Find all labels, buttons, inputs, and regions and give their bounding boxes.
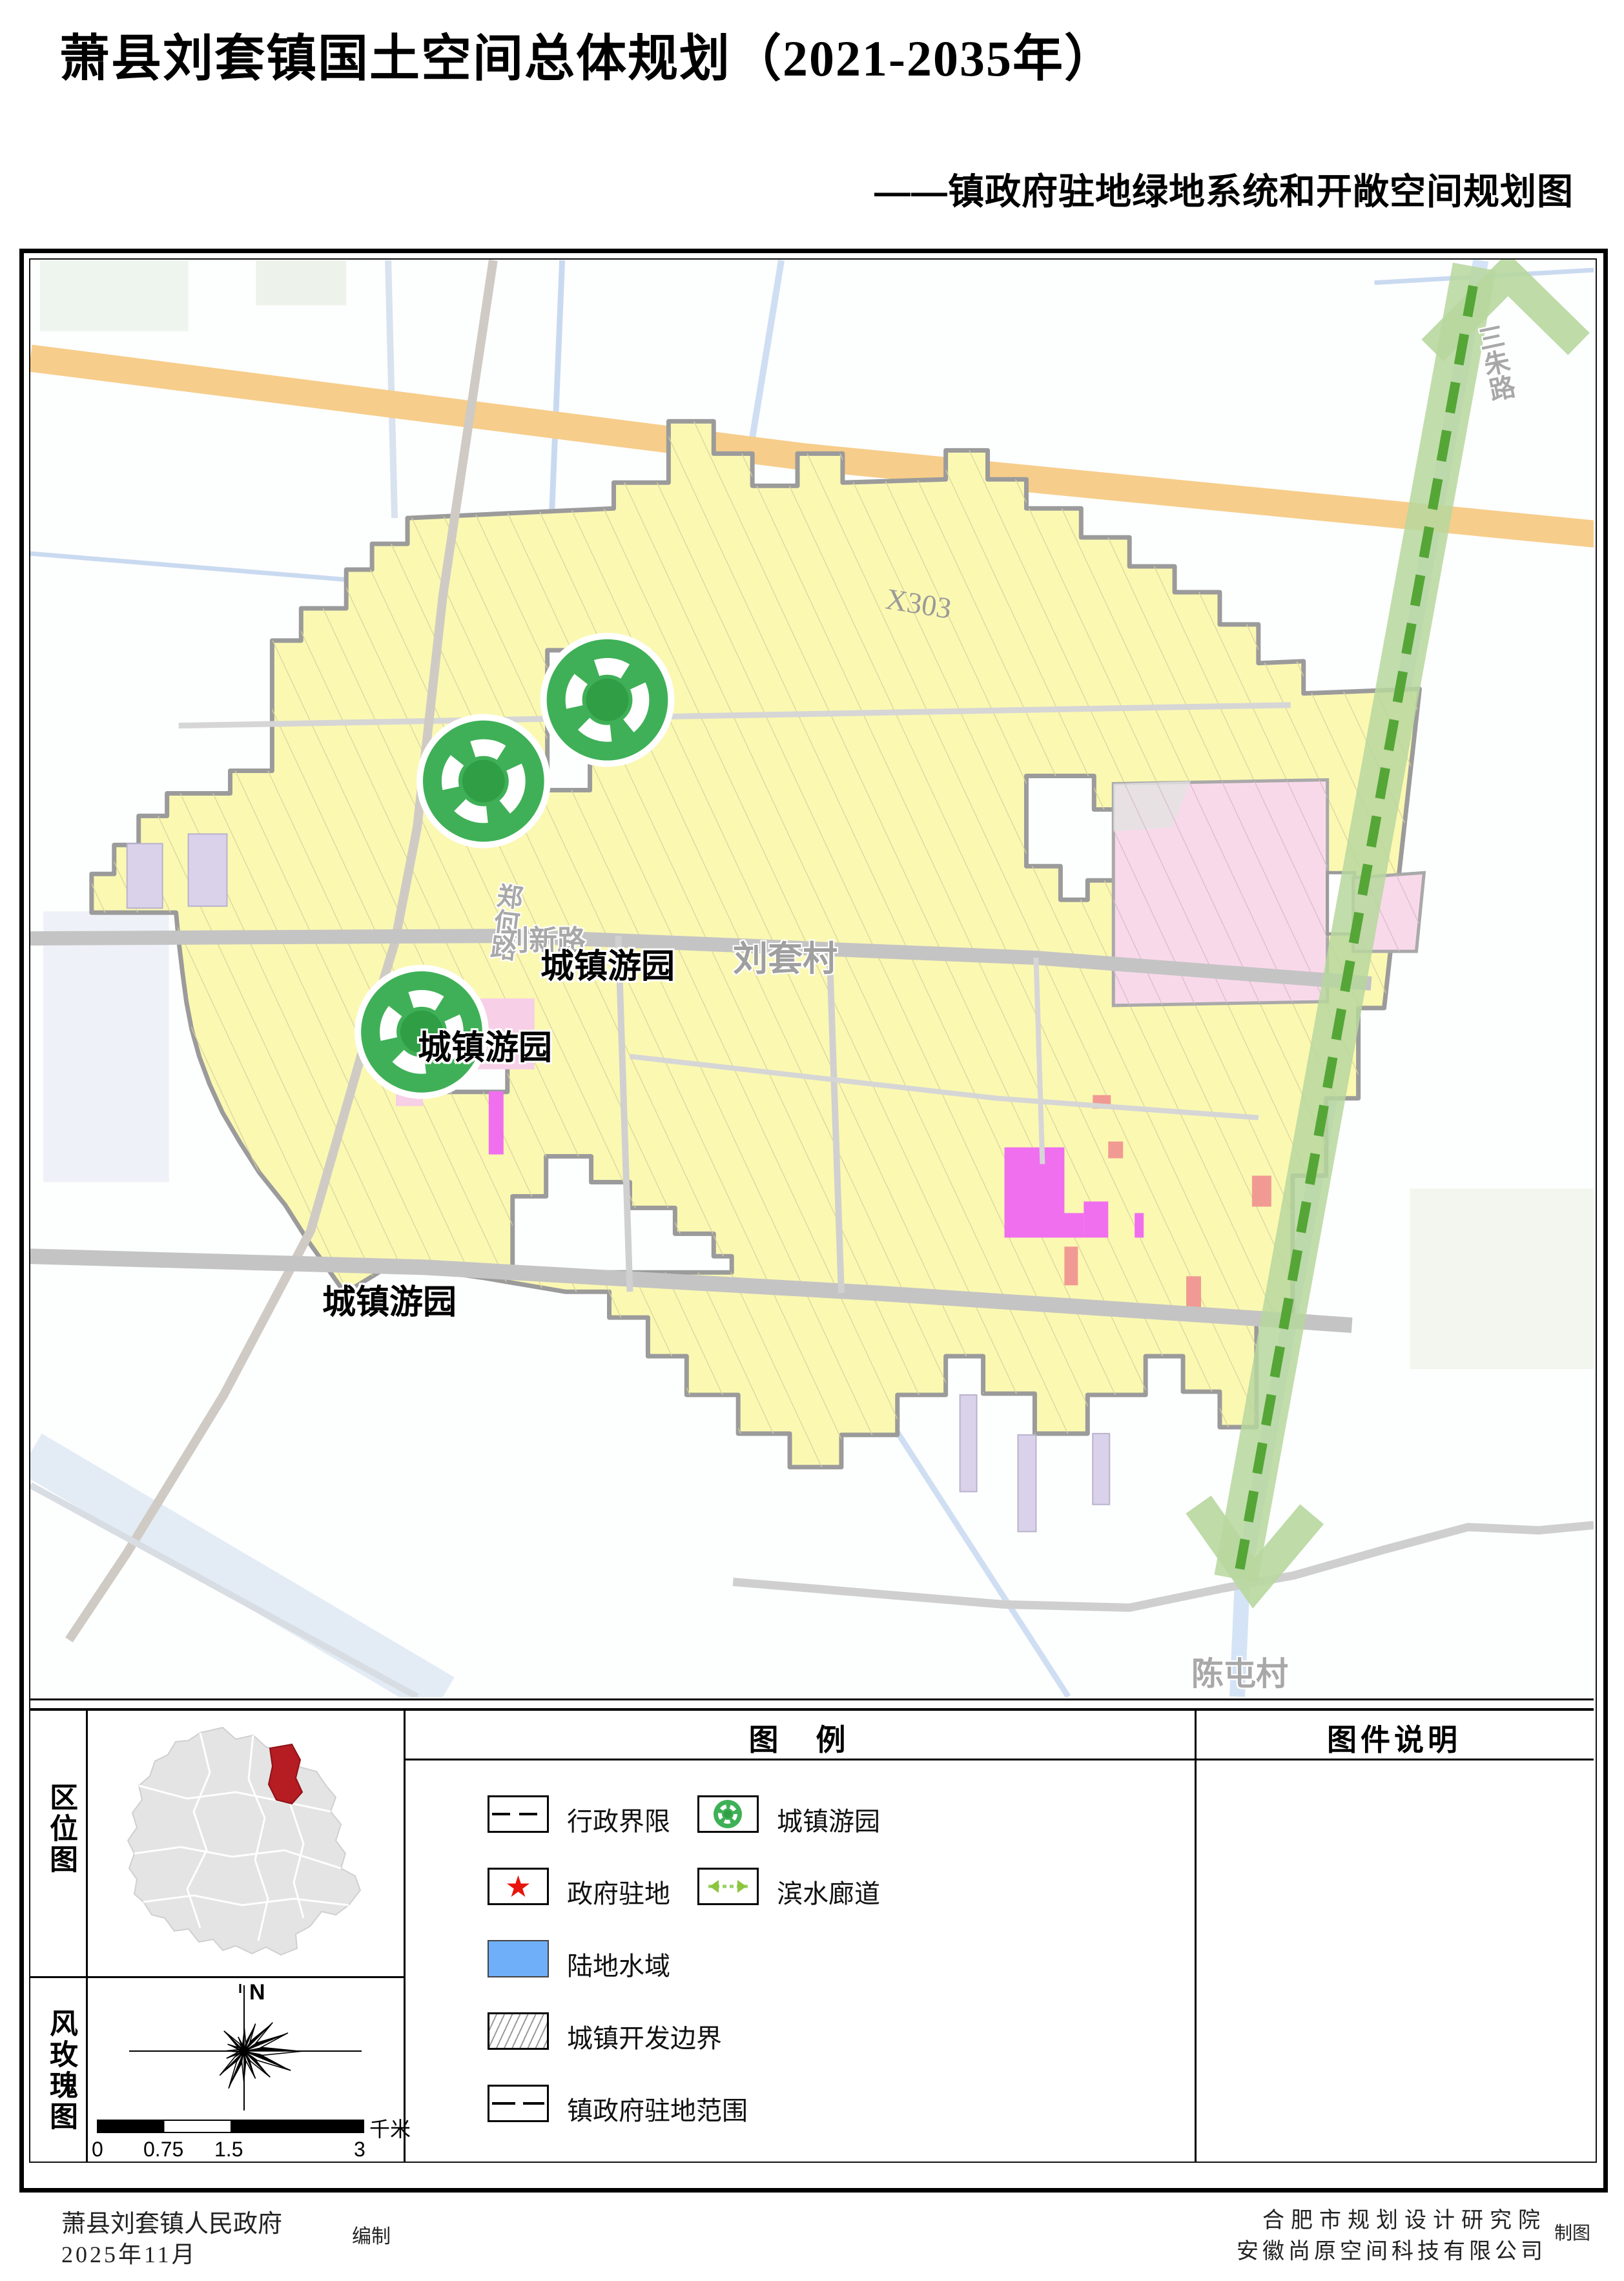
label-column-divider bbox=[86, 1711, 88, 2162]
north-label: N bbox=[249, 1981, 265, 2005]
legend-label-water: 陆地水域 bbox=[567, 1945, 670, 1983]
location-windrose-divider bbox=[30, 1976, 406, 1978]
legend-title: 图 例 bbox=[404, 1717, 1195, 1759]
scale-tick-3: 3 bbox=[354, 2138, 365, 2162]
legend-swatch-water bbox=[488, 1940, 549, 1977]
scale-tick-0: 0 bbox=[92, 2138, 103, 2162]
legend-label-town-park: 城镇游园 bbox=[777, 1801, 880, 1838]
location-map-thumbnail bbox=[103, 1721, 381, 1970]
park-label-3: 城镇游园 bbox=[322, 1275, 457, 1323]
star-icon: ★ bbox=[505, 1870, 531, 1903]
notes-left-divider bbox=[1195, 1711, 1197, 2162]
notes-title: 图件说明 bbox=[1195, 1717, 1594, 1759]
legend-label-seat-extent: 镇政府驻地范围 bbox=[567, 2090, 748, 2127]
legend-label-government-seat: 政府驻地 bbox=[567, 1873, 670, 1910]
park-label-1: 城镇游园 bbox=[418, 1020, 552, 1069]
location-map-section-label: 区位图 bbox=[40, 1782, 81, 1875]
legend-left-divider bbox=[404, 1711, 406, 2162]
legend-label-waterfront-corridor: 滨水廊道 bbox=[777, 1873, 880, 1910]
footer-compiler-role: 编制 bbox=[352, 2220, 391, 2249]
windrose-section-label: 风玫瑰图 bbox=[40, 2008, 81, 2132]
legend-label-development-boundary: 城镇开发边界 bbox=[567, 2018, 722, 2055]
waterfront-corridor-mini-icon bbox=[708, 1880, 748, 1893]
legend-label-admin-boundary: 行政界限 bbox=[567, 1801, 670, 1838]
map-bottom-divider bbox=[30, 1698, 1594, 1700]
scale-tick-15: 1.5 bbox=[214, 2138, 243, 2162]
footer-designer-1: 合肥市规划设计研究院 bbox=[1262, 2202, 1547, 2234]
liutao-village-label: 刘套村 bbox=[733, 930, 838, 981]
legend-swatch-development-boundary bbox=[488, 2012, 549, 2050]
footer-designer-role: 制图 bbox=[1554, 2219, 1590, 2245]
town-park-mini-icon bbox=[714, 1800, 742, 1828]
legend-swatch-admin-boundary bbox=[488, 1795, 549, 1833]
windrose-petals bbox=[220, 2023, 303, 2089]
highlighted-town bbox=[269, 1744, 302, 1804]
legend-swatch-government-seat: ★ bbox=[488, 1868, 549, 1905]
legend-swatch-town-park bbox=[697, 1795, 759, 1833]
legend-swatch-waterfront-corridor bbox=[697, 1868, 759, 1905]
scale-bar bbox=[97, 2120, 364, 2133]
chentun-village-label: 陈屯村 bbox=[1191, 1648, 1288, 1695]
scale-tick-075: 0.75 bbox=[143, 2138, 183, 2162]
scale-unit: 千米 bbox=[369, 2113, 411, 2143]
county-outline bbox=[128, 1728, 360, 1955]
page-title: 萧县刘套镇国土空间总体规划（2021-2035年） bbox=[59, 18, 1116, 90]
planning-map: X303 郑何路 刘新路 刘套村 三朱路 陈屯村 城镇游园 城镇游园 城镇游园 bbox=[30, 260, 1594, 1697]
footer-compiler: 萧县刘套镇人民政府 bbox=[61, 2204, 282, 2239]
park-label-2: 城镇游园 bbox=[540, 939, 675, 987]
footer-designer-2: 安徽尚原空间科技有限公司 bbox=[1237, 2233, 1547, 2265]
panel-top-border bbox=[30, 1708, 1594, 1711]
page-subtitle: ——镇政府驻地绿地系统和开敞空间规划图 bbox=[874, 163, 1574, 215]
legend-swatch-seat-extent bbox=[488, 2085, 549, 2122]
windrose-diagram: N bbox=[90, 1981, 394, 2117]
footer-date: 2025年11月 bbox=[61, 2236, 198, 2269]
